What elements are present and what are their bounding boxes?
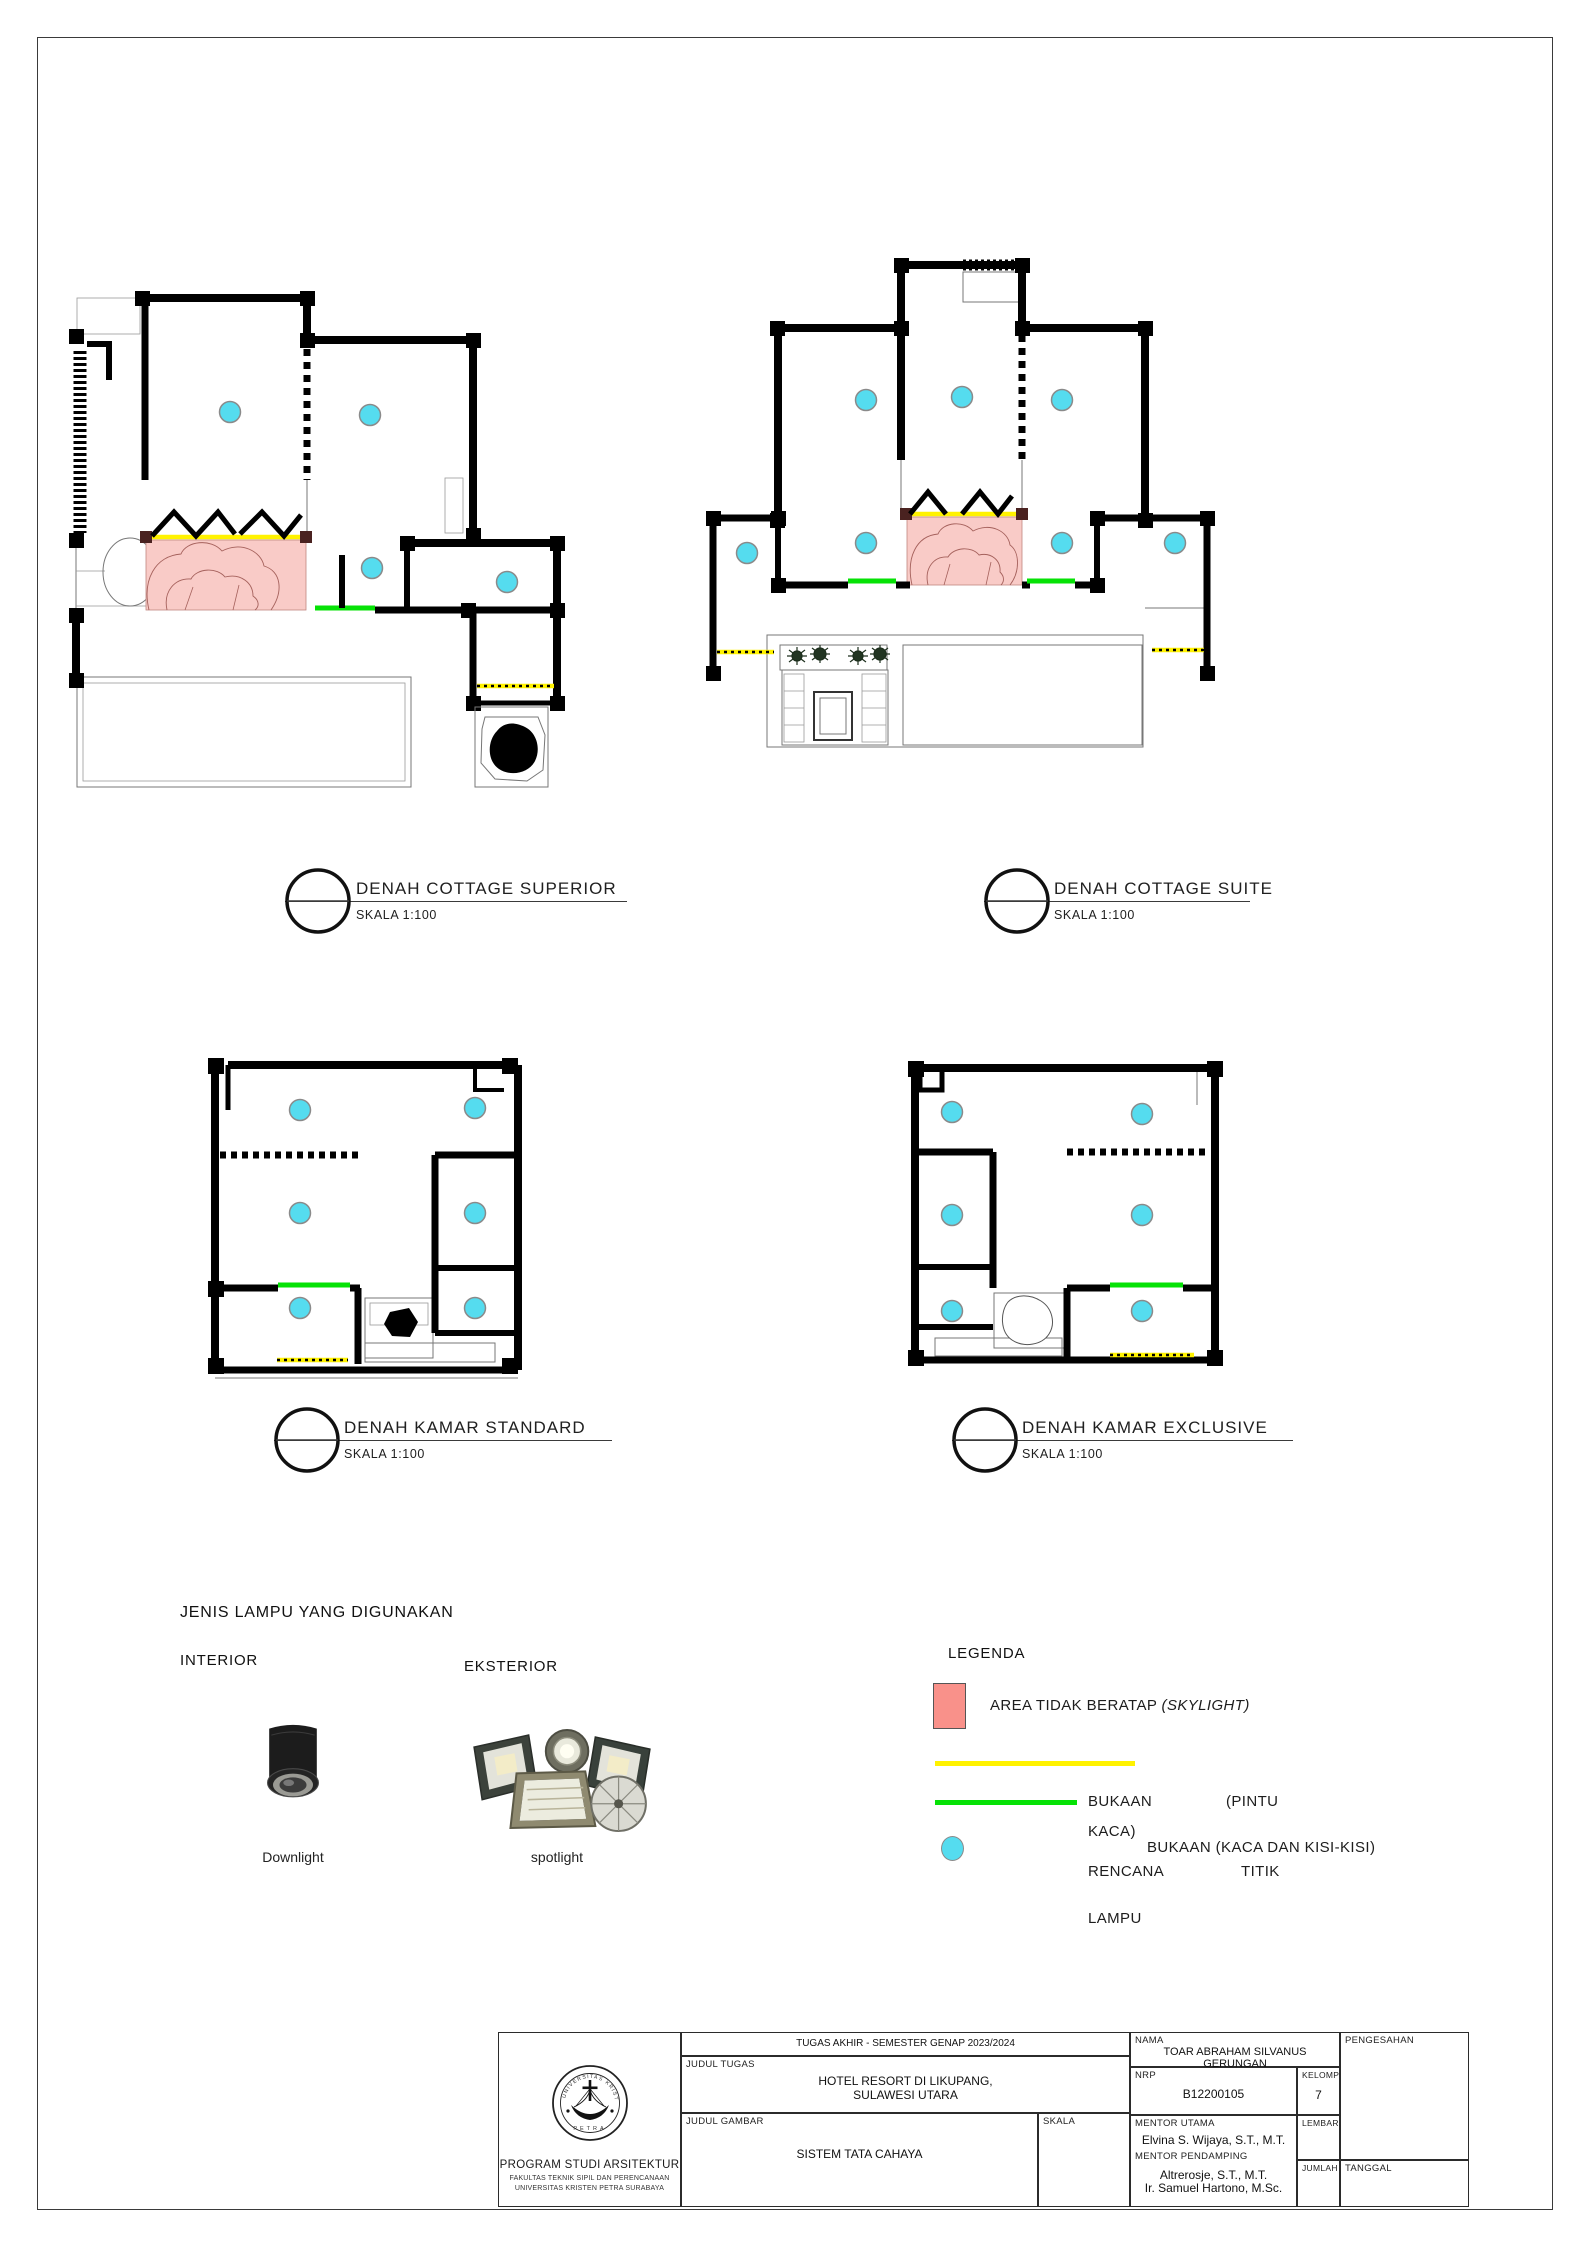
plan-scale: SKALA 1:100 — [344, 1447, 425, 1461]
plan-scale: SKALA 1:100 — [356, 908, 437, 922]
legend-green-line — [935, 1800, 1077, 1805]
jumlah-label: JUMLAH — [1302, 2163, 1338, 2173]
lembar-cell: LEMBAR — [1297, 2115, 1340, 2160]
legend-heading: LEGENDA — [948, 1645, 1025, 1662]
nrp-value: B12200105 — [1131, 2087, 1296, 2101]
legend-skylight-label: AREA TIDAK BERATAP (SKYLIGHT) — [990, 1697, 1250, 1714]
legend-bukaan-pintu-word: (PINTU — [1226, 1793, 1278, 1810]
program-name: PROGRAM STUDI ARSITEKTUR — [499, 2159, 680, 2171]
zigzag-symbol — [910, 492, 946, 514]
mentor-utama-label: MENTOR UTAMA — [1135, 2118, 1215, 2129]
judul-gambar-label: JUDUL GAMBAR — [686, 2116, 764, 2127]
skala-label: SKALA — [1043, 2116, 1075, 2127]
tanggal-label: TANGGAL — [1345, 2163, 1392, 2174]
zigzag-symbol — [152, 512, 235, 536]
plan-scale: SKALA 1:100 — [1054, 908, 1135, 922]
exterior-label: EKSTERIOR — [464, 1658, 558, 1675]
plan-drawing-kamar-standard — [190, 1040, 530, 1380]
legend-yellow-line — [935, 1761, 1135, 1766]
section-marker-icon — [984, 868, 1050, 934]
jumlah-cell: JUMLAH — [1297, 2160, 1340, 2207]
mentor-pendamping-label: MENTOR PENDAMPING — [1135, 2151, 1248, 2162]
legend-bukaan-pintu-word: BUKAAN — [1088, 1793, 1152, 1810]
svg-text:PETRA: PETRA — [573, 2126, 606, 2132]
section-marker-icon — [285, 868, 351, 934]
skala-cell: SKALA — [1038, 2113, 1130, 2207]
faculty-name: FAKULTAS TEKNIK SIPIL DAN PERENCANAAN — [499, 2175, 680, 2182]
drawing-sheet: DENAH COTTAGE SUPERIOR SKALA 1:100 DENAH… — [0, 0, 1587, 2245]
nrp-cell: NRP B12200105 — [1130, 2067, 1297, 2115]
university-seal-icon: UNIVERSITAS KRISTEN PETRA — [550, 2061, 630, 2145]
skylight-italic: (SKYLIGHT) — [1162, 1697, 1250, 1714]
tanggal-cell: TANGGAL — [1340, 2160, 1469, 2207]
zigzag-symbol — [240, 512, 301, 536]
bathtub — [1002, 1296, 1052, 1345]
plan-title: DENAH COTTAGE SUITE — [1054, 879, 1273, 899]
nrp-label: NRP — [1135, 2070, 1156, 2081]
legend-bukaan-kisi-label: BUKAAN (KACA DAN KISI-KISI) — [1147, 1839, 1375, 1856]
stone-sink — [384, 1308, 418, 1337]
judul-tugas-value: HOTEL RESORT DI LIKUPANG, — [682, 2074, 1129, 2088]
plan-title: DENAH COTTAGE SUPERIOR — [356, 879, 617, 899]
judul-tugas-value: SULAWESI UTARA — [682, 2088, 1129, 2102]
university-name: UNIVERSITAS KRISTEN PETRA SURABAYA — [499, 2185, 680, 2192]
judul-tugas-cell: JUDUL TUGAS HOTEL RESORT DI LIKUPANG, SU… — [681, 2056, 1130, 2113]
kelompok-value: 7 — [1298, 2088, 1339, 2102]
legend-rencana-word: TITIK — [1241, 1863, 1280, 1880]
section-marker-icon — [274, 1407, 340, 1473]
plan-drawing-cottage-superior — [57, 265, 657, 855]
kitchen-counter — [782, 670, 888, 745]
stone-tub — [475, 707, 548, 787]
judul-tugas-label: JUDUL TUGAS — [686, 2059, 755, 2070]
plan-drawing-cottage-suite — [700, 240, 1500, 860]
mentor-pendamping-value: Altrerosje, S.T., M.T. — [1131, 2168, 1296, 2182]
skylight-swatch — [933, 1683, 966, 1729]
mentor-utama-value: Elvina S. Wijaya, S.T., M.T. — [1131, 2133, 1296, 2147]
mentor-pendamping-value: Ir. Samuel Hartono, M.Sc. — [1131, 2181, 1296, 2195]
legend-rencana-word: RENCANA — [1088, 1863, 1164, 1880]
spotlight-label: spotlight — [497, 1849, 617, 1865]
course-title: TUGAS AKHIR - SEMESTER GENAP 2023/2024 — [682, 2038, 1129, 2049]
skylight-area — [146, 540, 306, 610]
course-cell: TUGAS AKHIR - SEMESTER GENAP 2023/2024 — [681, 2032, 1130, 2056]
planter-plants — [787, 645, 890, 665]
legend-rencana-word: LAMPU — [1088, 1910, 1142, 1927]
legend-lamp-dot — [941, 1836, 964, 1861]
plan-title: DENAH KAMAR STANDARD — [344, 1418, 586, 1438]
columns — [706, 258, 1215, 681]
lembar-label: LEMBAR — [1302, 2118, 1339, 2128]
mentor-cell: MENTOR UTAMA Elvina S. Wijaya, S.T., M.T… — [1130, 2115, 1297, 2207]
judul-gambar-value: SISTEM TATA CAHAYA — [682, 2147, 1037, 2161]
judul-gambar-cell: JUDUL GAMBAR SISTEM TATA CAHAYA — [681, 2113, 1038, 2207]
lamp-section-heading: JENIS LAMPU YANG DIGUNAKAN — [180, 1604, 454, 1622]
nama-label: NAMA — [1135, 2035, 1164, 2046]
interior-label: INTERIOR — [180, 1652, 258, 1669]
downlight-label: Downlight — [233, 1849, 353, 1865]
legend-bukaan-pintu-word: KACA) — [1088, 1823, 1136, 1840]
institution-cell: UNIVERSITAS KRISTEN PETRA PROGRAM STUDI … — [498, 2032, 681, 2207]
pengesahan-label: PENGESAHAN — [1345, 2035, 1414, 2046]
downlight-image — [260, 1720, 326, 1812]
section-marker-icon — [952, 1407, 1018, 1473]
plan-drawing-kamar-exclusive — [890, 1040, 1230, 1380]
spotlight-image — [466, 1722, 658, 1840]
zigzag-symbol — [962, 492, 1012, 514]
nama-cell: NAMA TOAR ABRAHAM SILVANUS GERUNGAN — [1130, 2032, 1340, 2067]
plan-scale: SKALA 1:100 — [1022, 1447, 1103, 1461]
lamp-points — [942, 1102, 1153, 1322]
kelompok-cell: KELOMPOK 7 — [1297, 2067, 1340, 2115]
pengesahan-cell: PENGESAHAN — [1340, 2032, 1469, 2160]
skylight-area — [907, 517, 1022, 585]
title-block: UNIVERSITAS KRISTEN PETRA PROGRAM STUDI … — [498, 2032, 1469, 2207]
plan-title: DENAH KAMAR EXCLUSIVE — [1022, 1418, 1268, 1438]
